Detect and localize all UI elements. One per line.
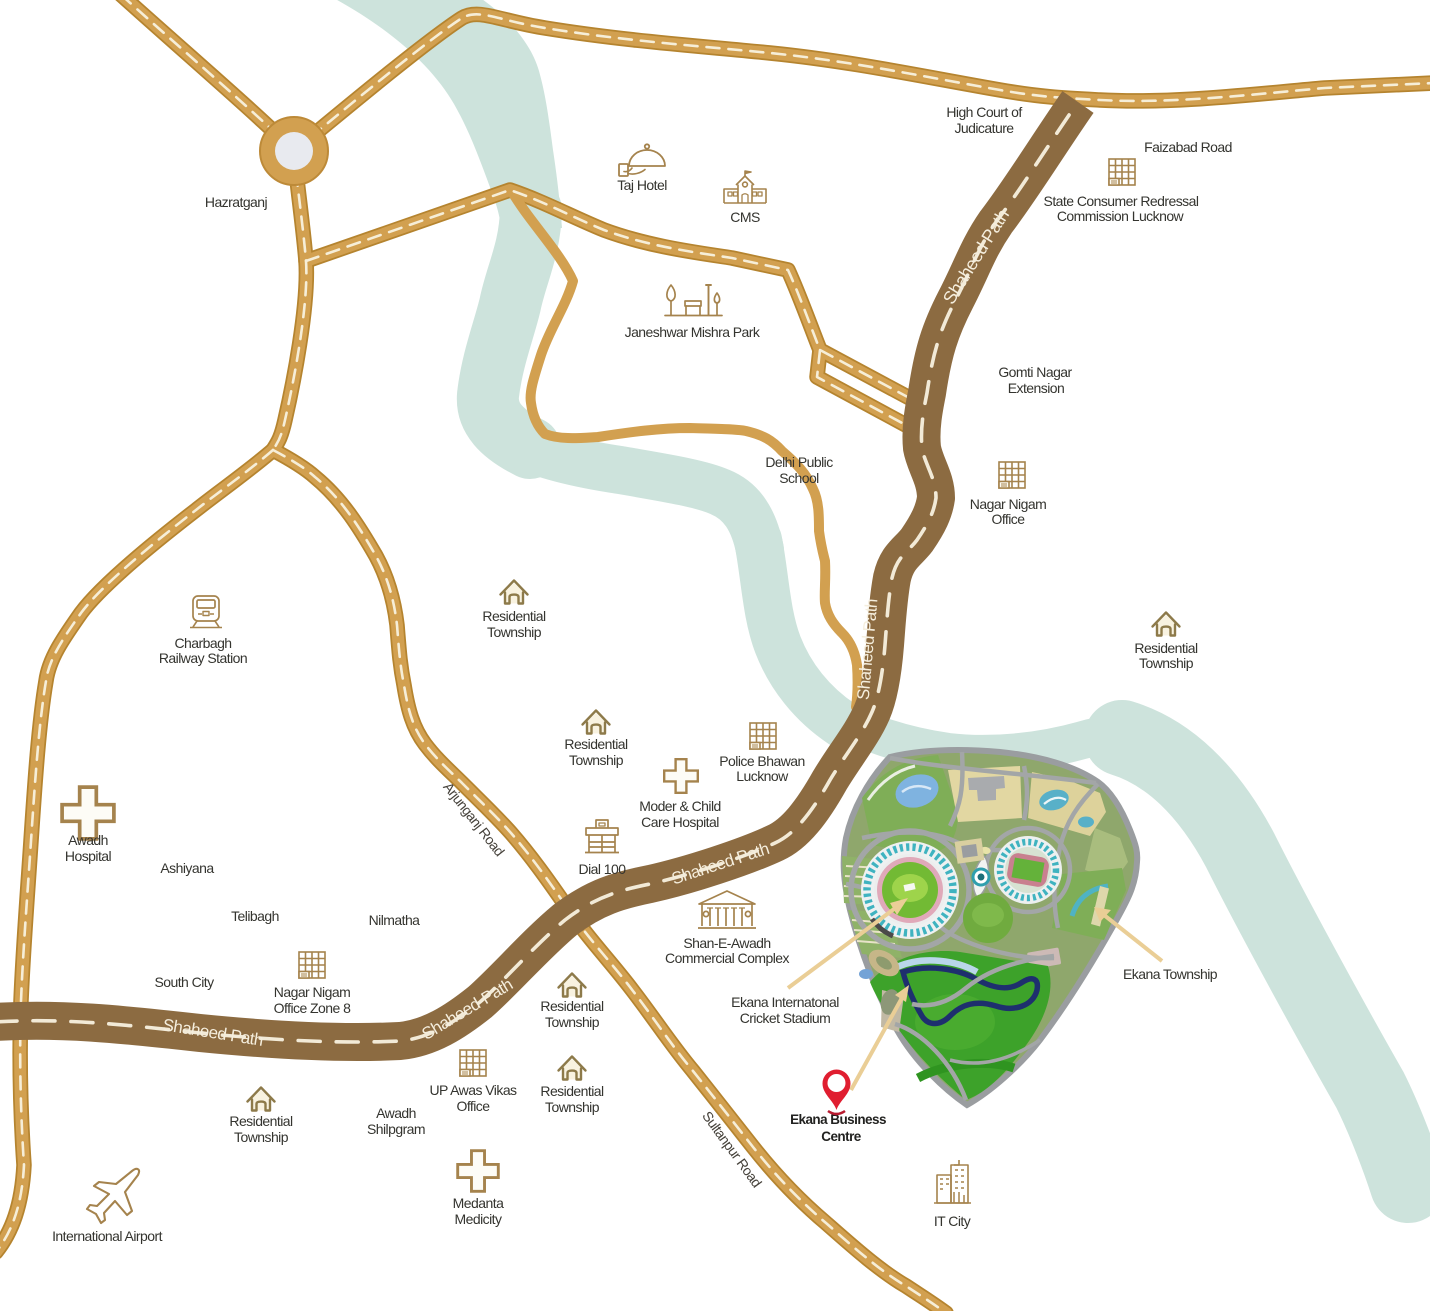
svg-text:Extension: Extension: [1008, 380, 1065, 396]
svg-text:Charbagh: Charbagh: [174, 635, 231, 651]
svg-text:Township: Township: [487, 624, 542, 640]
svg-text:Township: Township: [1139, 655, 1194, 671]
svg-text:Residential: Residential: [540, 998, 604, 1014]
svg-text:IT City: IT City: [934, 1213, 971, 1229]
svg-text:Cricket Stadium: Cricket Stadium: [740, 1010, 831, 1026]
svg-text:Gomti Nagar: Gomti Nagar: [998, 364, 1072, 380]
svg-text:Railway Station: Railway Station: [159, 650, 247, 666]
svg-text:Residential: Residential: [482, 608, 546, 624]
svg-text:Faizabad Road: Faizabad Road: [1144, 139, 1232, 155]
svg-text:Telibagh: Telibagh: [231, 908, 279, 924]
svg-text:Janeshwar Mishra Park: Janeshwar Mishra Park: [625, 324, 761, 340]
svg-text:Township: Township: [545, 1099, 600, 1115]
svg-text:Hazratganj: Hazratganj: [205, 194, 268, 210]
svg-text:Judicature: Judicature: [954, 120, 1014, 136]
svg-text:Police Bhawan: Police Bhawan: [719, 753, 804, 769]
svg-text:State Consumer Redressal: State Consumer Redressal: [1044, 193, 1199, 209]
svg-text:Township: Township: [545, 1014, 600, 1030]
svg-text:Awadh: Awadh: [68, 832, 108, 848]
svg-text:Shilpgram: Shilpgram: [367, 1121, 425, 1137]
svg-text:Office: Office: [991, 511, 1025, 527]
svg-text:Township: Township: [234, 1129, 289, 1145]
svg-text:Residential: Residential: [540, 1083, 604, 1099]
svg-text:Awadh: Awadh: [376, 1105, 416, 1121]
svg-text:Nilmatha: Nilmatha: [369, 912, 421, 928]
svg-text:Township: Township: [569, 752, 624, 768]
svg-text:Residential: Residential: [1134, 640, 1198, 656]
svg-text:Ekana Internatonal: Ekana Internatonal: [731, 994, 839, 1010]
svg-text:Lucknow: Lucknow: [736, 768, 789, 784]
svg-text:Residential: Residential: [229, 1113, 293, 1129]
svg-text:Nagar Nigam: Nagar Nigam: [274, 984, 350, 1000]
svg-text:South City: South City: [154, 974, 214, 990]
svg-text:Medicity: Medicity: [455, 1211, 502, 1227]
svg-text:High Court of: High Court of: [946, 104, 1022, 120]
svg-text:Commercial Complex: Commercial Complex: [665, 950, 789, 966]
svg-text:Moder & Child: Moder & Child: [639, 798, 721, 814]
svg-text:Ashiyana: Ashiyana: [160, 860, 214, 876]
svg-text:Taj Hotel: Taj Hotel: [617, 177, 667, 193]
svg-text:International Airport: International Airport: [52, 1228, 163, 1244]
svg-text:Nagar Nigam: Nagar Nigam: [970, 496, 1046, 512]
svg-text:Dial 100: Dial 100: [579, 861, 627, 877]
svg-text:Office Zone 8: Office Zone 8: [274, 1000, 351, 1016]
svg-text:UP Awas Vikas: UP Awas Vikas: [429, 1082, 517, 1098]
svg-text:Shan-E-Awadh: Shan-E-Awadh: [683, 935, 770, 951]
svg-text:Hospital: Hospital: [65, 848, 112, 864]
svg-text:Commission Lucknow: Commission Lucknow: [1057, 208, 1185, 224]
svg-text:Residential: Residential: [564, 736, 628, 752]
svg-text:Ekana Township: Ekana Township: [1123, 966, 1218, 982]
svg-text:Office: Office: [456, 1098, 490, 1114]
svg-text:Care Hospital: Care Hospital: [641, 814, 719, 830]
svg-text:Centre: Centre: [821, 1129, 862, 1144]
svg-text:School: School: [779, 470, 819, 486]
svg-text:Medanta: Medanta: [453, 1195, 504, 1211]
svg-text:Delhi Public: Delhi Public: [765, 454, 833, 470]
svg-text:CMS: CMS: [730, 209, 760, 225]
